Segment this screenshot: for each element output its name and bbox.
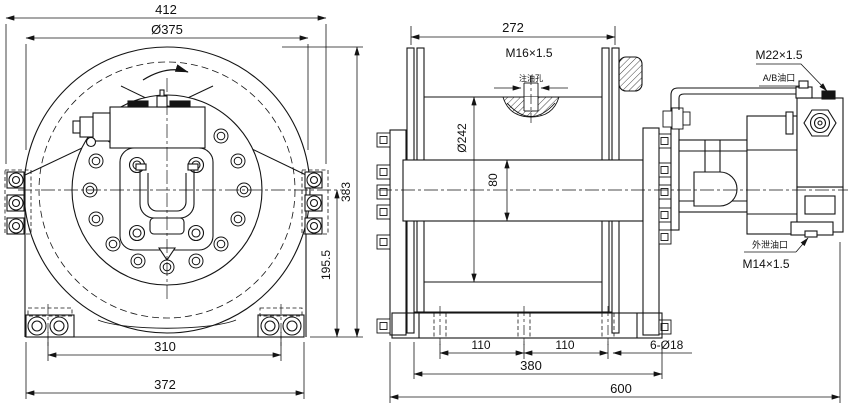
dim-overall-width: 412 (155, 2, 177, 17)
fill-port-label: 注油孔 (519, 73, 543, 83)
dim-hole-pitch-left: 110 (471, 338, 490, 352)
frame-plate-right (643, 128, 659, 335)
dim-overall-length: 600 (610, 381, 632, 396)
tie-tabs-left (377, 133, 390, 333)
tie-rod-bolts-right (305, 172, 322, 234)
drum-barrel (403, 160, 643, 221)
fill-port-thread-label: M16×1.5 (505, 46, 552, 60)
technical-drawing-page: 412 Ø375 383 195.5 310 372 (0, 0, 850, 413)
ab-port-thread-label: M22×1.5 (755, 48, 802, 62)
drain-port-thread-label: M14×1.5 (742, 257, 789, 271)
drain-port (805, 231, 817, 237)
dim-foot-bolt-spacing: 310 (154, 339, 176, 354)
dim-drum-length: 272 (502, 20, 524, 35)
drawing-canvas: 412 Ø375 383 195.5 310 372 (0, 0, 850, 413)
rope-clamp (619, 57, 642, 91)
tie-rod-bolts-left (7, 172, 24, 234)
hydraulic-motor (663, 81, 843, 237)
motor-cover (120, 148, 213, 260)
valve-port-left (128, 101, 148, 107)
valve-port-right (170, 101, 190, 107)
side-view (377, 48, 848, 345)
front-view (5, 47, 345, 346)
dim-base-width: 372 (154, 377, 176, 392)
rotation-direction-arrow-icon (143, 70, 188, 80)
tie-tabs-right (659, 134, 671, 334)
dim-flange-diameter: Ø375 (151, 22, 183, 37)
hydraulic-pipe (671, 88, 796, 110)
hex-fitting-icon (73, 113, 110, 147)
ab-port-label: A/B油口 (763, 72, 796, 83)
dim-overall-height: 383 (339, 182, 353, 202)
dim-barrel-diameter: 80 (486, 173, 500, 187)
drain-port-label: 外泄油口 (752, 239, 788, 250)
dim-axis-height: 195.5 (319, 250, 333, 280)
dim-drum-flange-diameter: Ø242 (455, 123, 469, 153)
dim-base-length: 380 (520, 358, 542, 373)
dim-hole-pitch-right: 110 (555, 338, 574, 352)
ab-oil-port (822, 91, 835, 99)
pipe-fitting-icon (663, 108, 690, 129)
mount-holes-label: 6-Ø18 (650, 338, 684, 352)
